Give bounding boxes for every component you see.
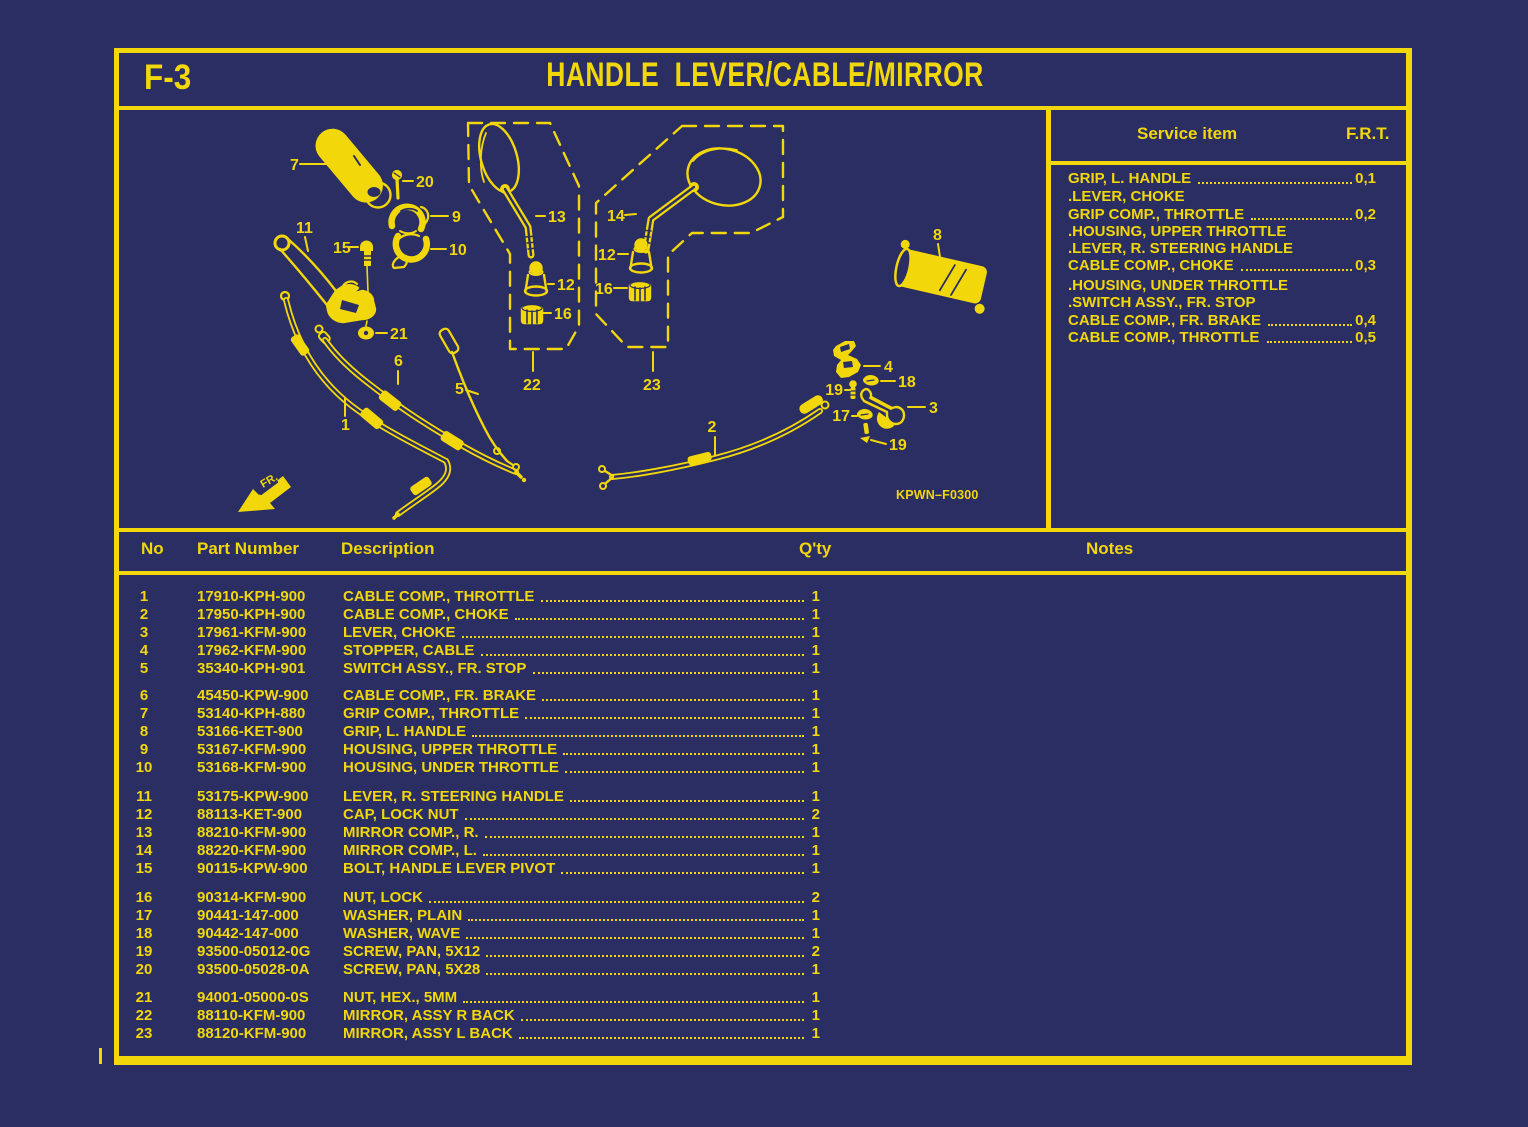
svg-text:2: 2 [708,419,717,436]
svg-text:KPWN–F0300: KPWN–F0300 [896,488,979,502]
svg-text:1: 1 [341,417,350,434]
svg-text:12: 12 [598,247,616,264]
svg-text:23: 23 [643,377,661,394]
svg-text:16: 16 [595,281,613,298]
svg-text:14: 14 [607,208,625,225]
svg-text:18: 18 [898,374,916,391]
svg-text:20: 20 [416,174,434,191]
svg-text:5: 5 [455,381,464,398]
svg-text:19: 19 [889,437,907,454]
svg-text:16: 16 [554,306,572,323]
svg-text:12: 12 [557,277,575,294]
svg-text:15: 15 [333,240,351,257]
svg-text:9: 9 [452,209,461,226]
svg-text:17: 17 [832,408,850,425]
svg-text:19: 19 [825,382,843,399]
svg-text:10: 10 [449,242,467,259]
svg-text:6: 6 [394,353,403,370]
svg-text:4: 4 [884,359,893,376]
svg-text:8: 8 [933,227,942,244]
svg-text:13: 13 [548,209,566,226]
svg-text:22: 22 [523,377,541,394]
svg-text:11: 11 [296,220,313,237]
svg-text:7: 7 [290,157,299,174]
svg-text:3: 3 [929,400,938,417]
svg-text:21: 21 [390,326,408,343]
